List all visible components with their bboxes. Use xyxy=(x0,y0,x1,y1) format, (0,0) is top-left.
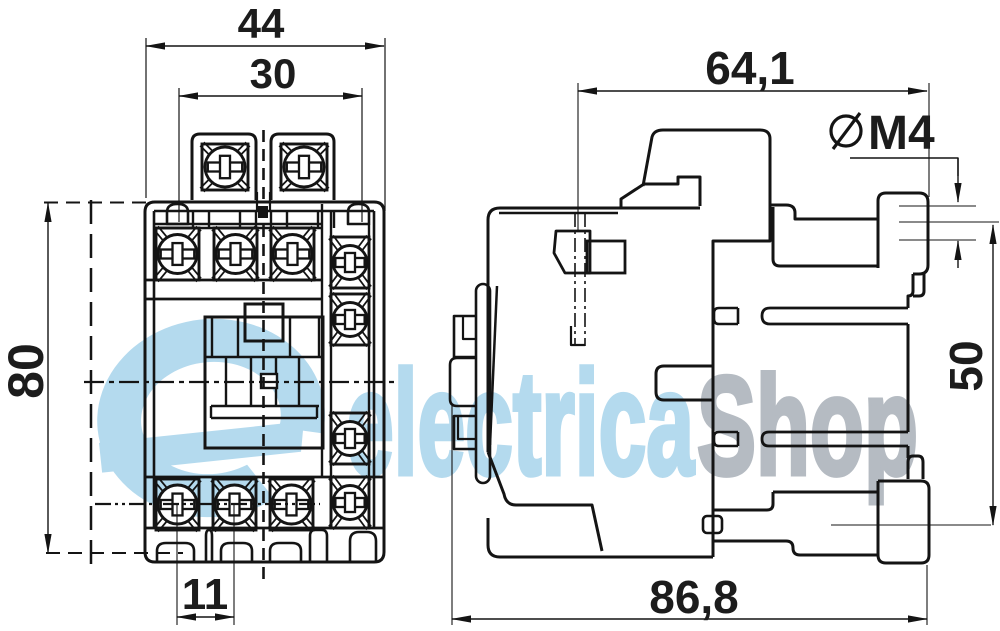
svg-text:11: 11 xyxy=(182,570,229,619)
svg-text:80: 80 xyxy=(0,343,54,399)
svg-text:64,1: 64,1 xyxy=(705,42,795,94)
svg-text:M4: M4 xyxy=(868,107,935,160)
svg-text:44: 44 xyxy=(238,0,285,47)
svg-text:30: 30 xyxy=(250,50,297,97)
svg-text:electrica: electrica xyxy=(346,341,695,506)
svg-text:86,8: 86,8 xyxy=(649,571,739,623)
svg-text:50: 50 xyxy=(940,340,992,391)
